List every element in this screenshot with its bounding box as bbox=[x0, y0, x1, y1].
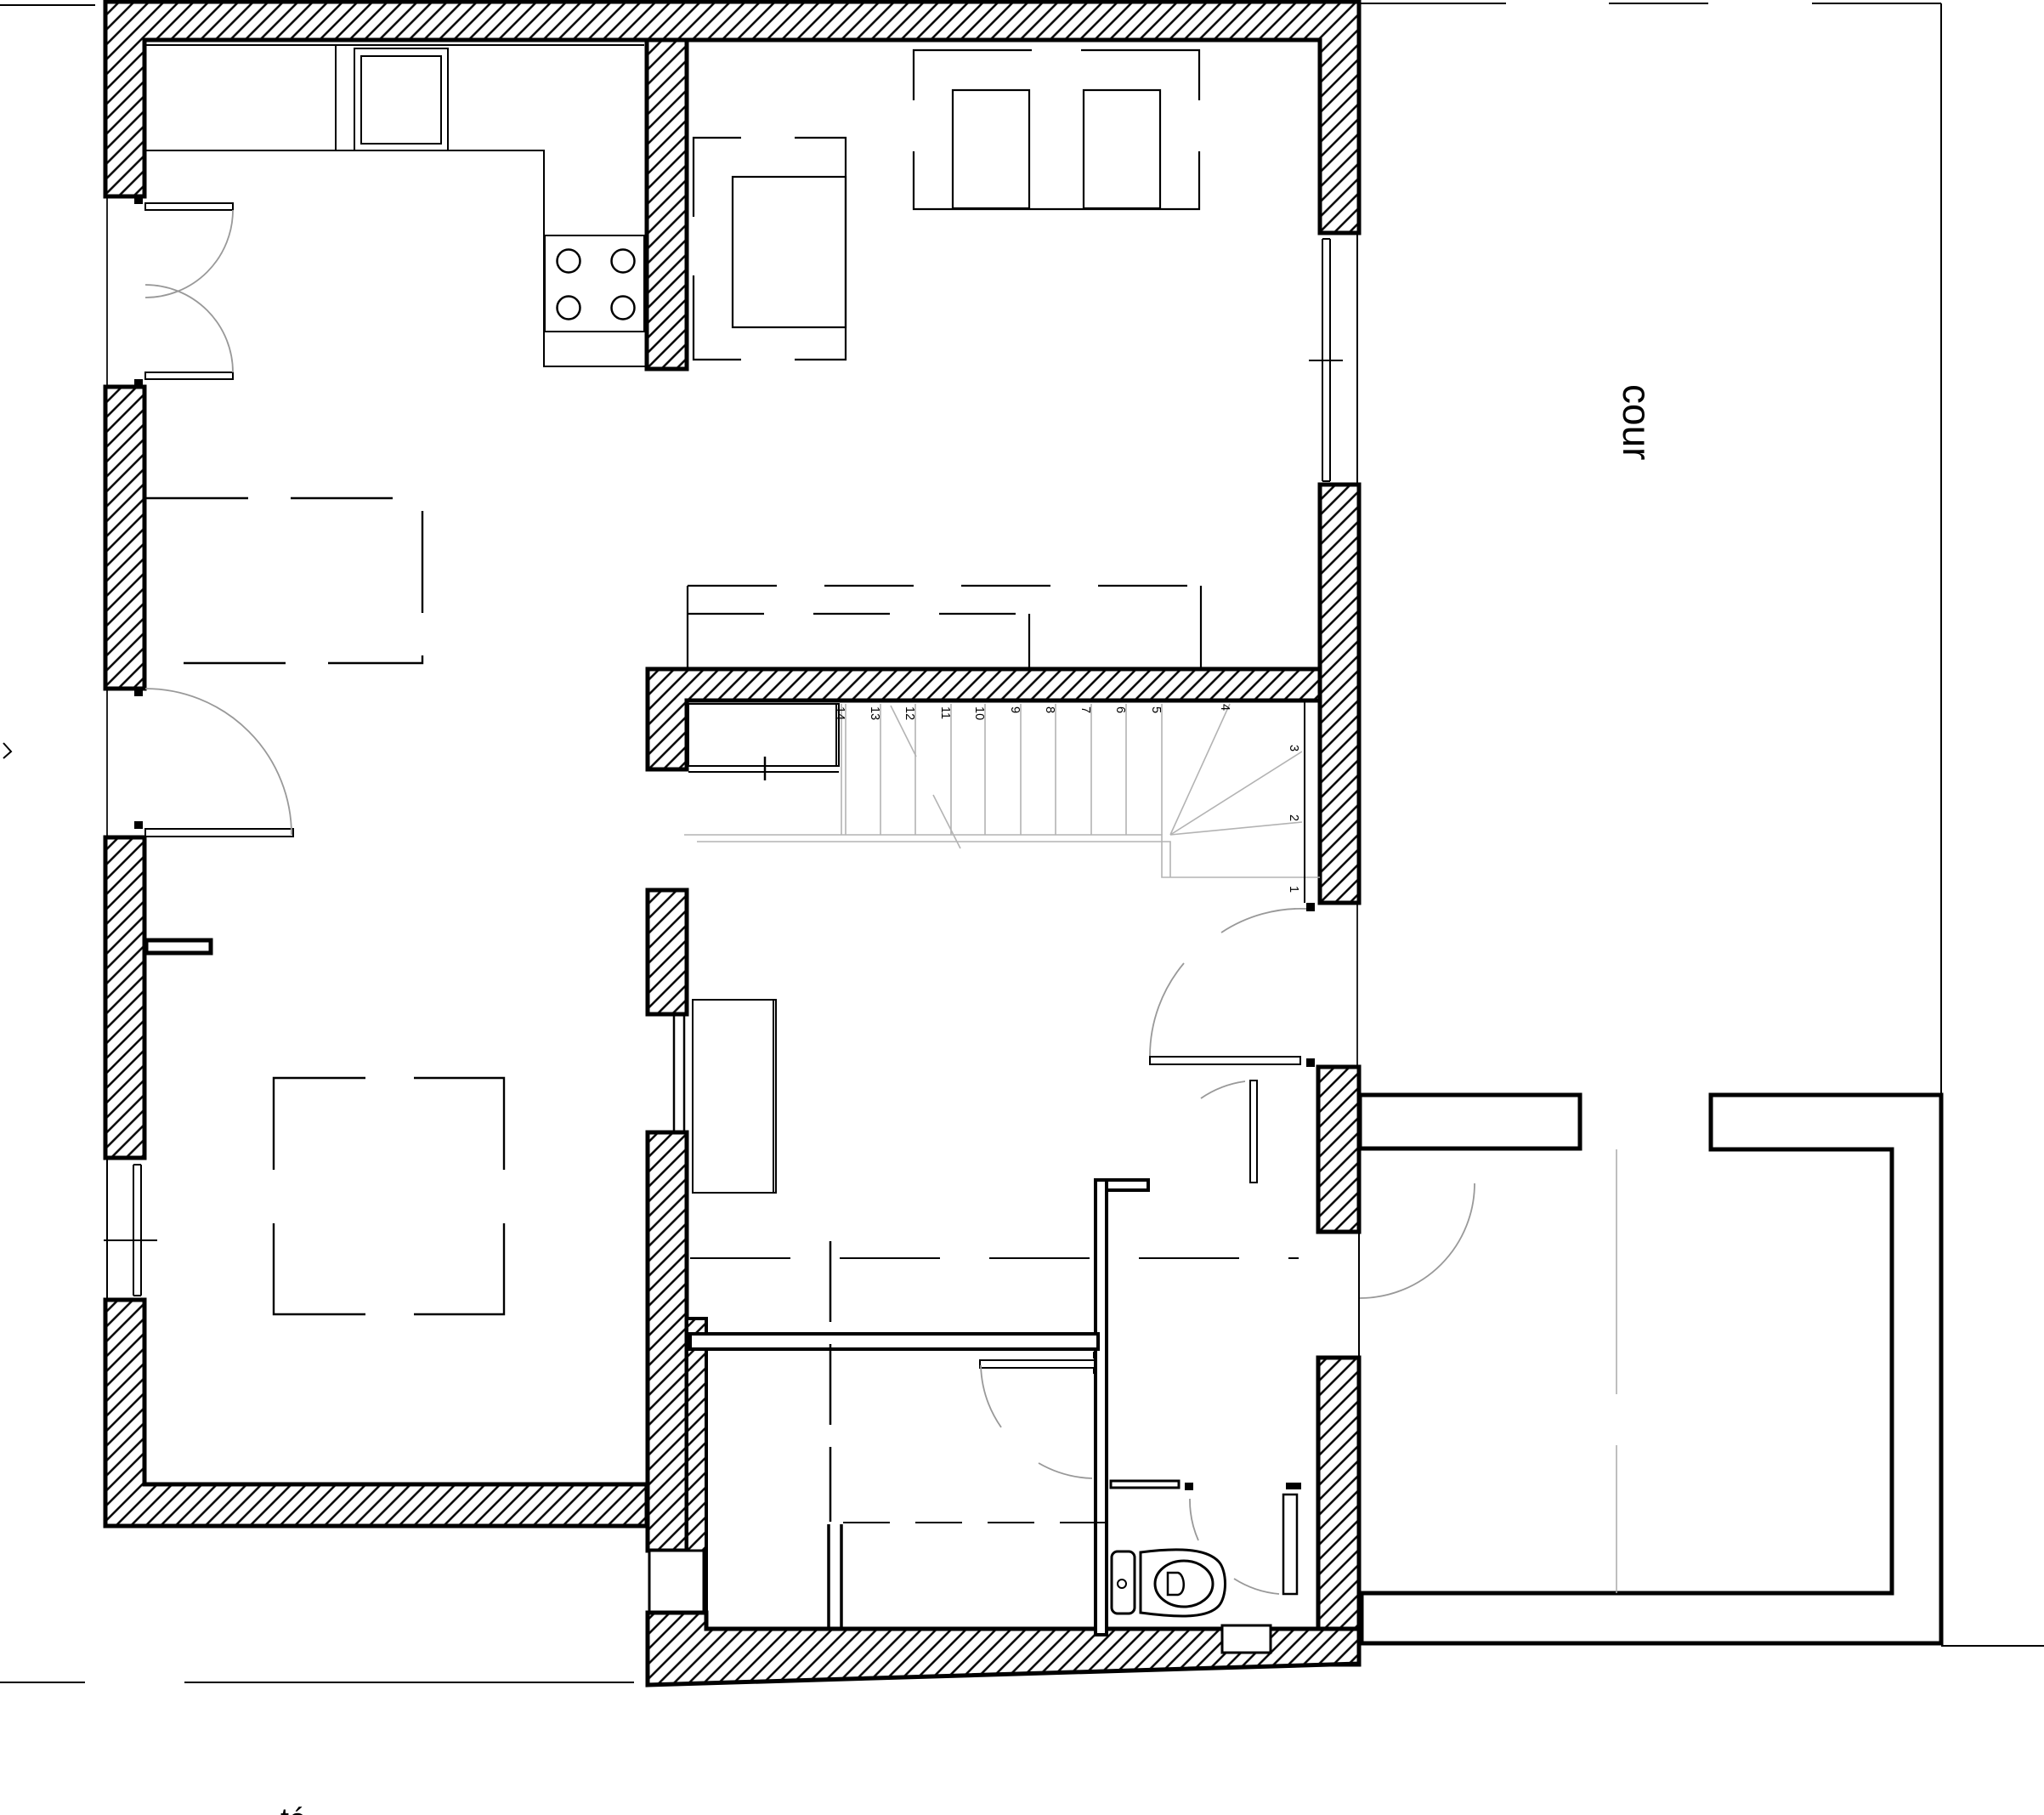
svg-text:4: 4 bbox=[1218, 704, 1231, 711]
svg-text:1: 1 bbox=[1287, 886, 1300, 893]
svg-text:3: 3 bbox=[1287, 745, 1300, 752]
svg-text:2: 2 bbox=[1287, 814, 1300, 821]
svg-text:8: 8 bbox=[1043, 706, 1056, 713]
svg-text:12: 12 bbox=[903, 706, 916, 720]
svg-text:té: té bbox=[280, 1801, 306, 1815]
svg-text:7: 7 bbox=[1079, 706, 1092, 713]
svg-text:5: 5 bbox=[1149, 706, 1163, 713]
svg-text:11: 11 bbox=[938, 706, 952, 719]
svg-text:10: 10 bbox=[972, 706, 986, 720]
svg-text:6: 6 bbox=[1113, 706, 1127, 713]
svg-text:cour: cour bbox=[1615, 384, 1659, 460]
svg-text:13: 13 bbox=[868, 706, 881, 720]
svg-text:9: 9 bbox=[1008, 706, 1022, 713]
